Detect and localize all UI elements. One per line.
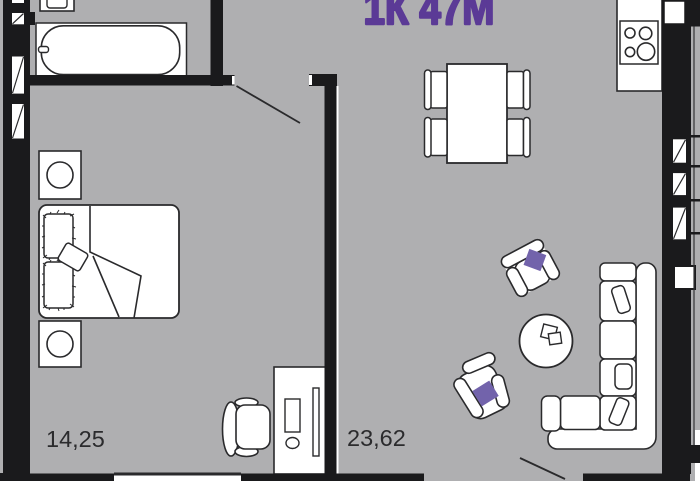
svg-text:1К 47М: 1К 47М [364, 0, 495, 34]
svg-text:23,62: 23,62 [347, 425, 406, 451]
svg-text:14,25: 14,25 [46, 426, 105, 452]
